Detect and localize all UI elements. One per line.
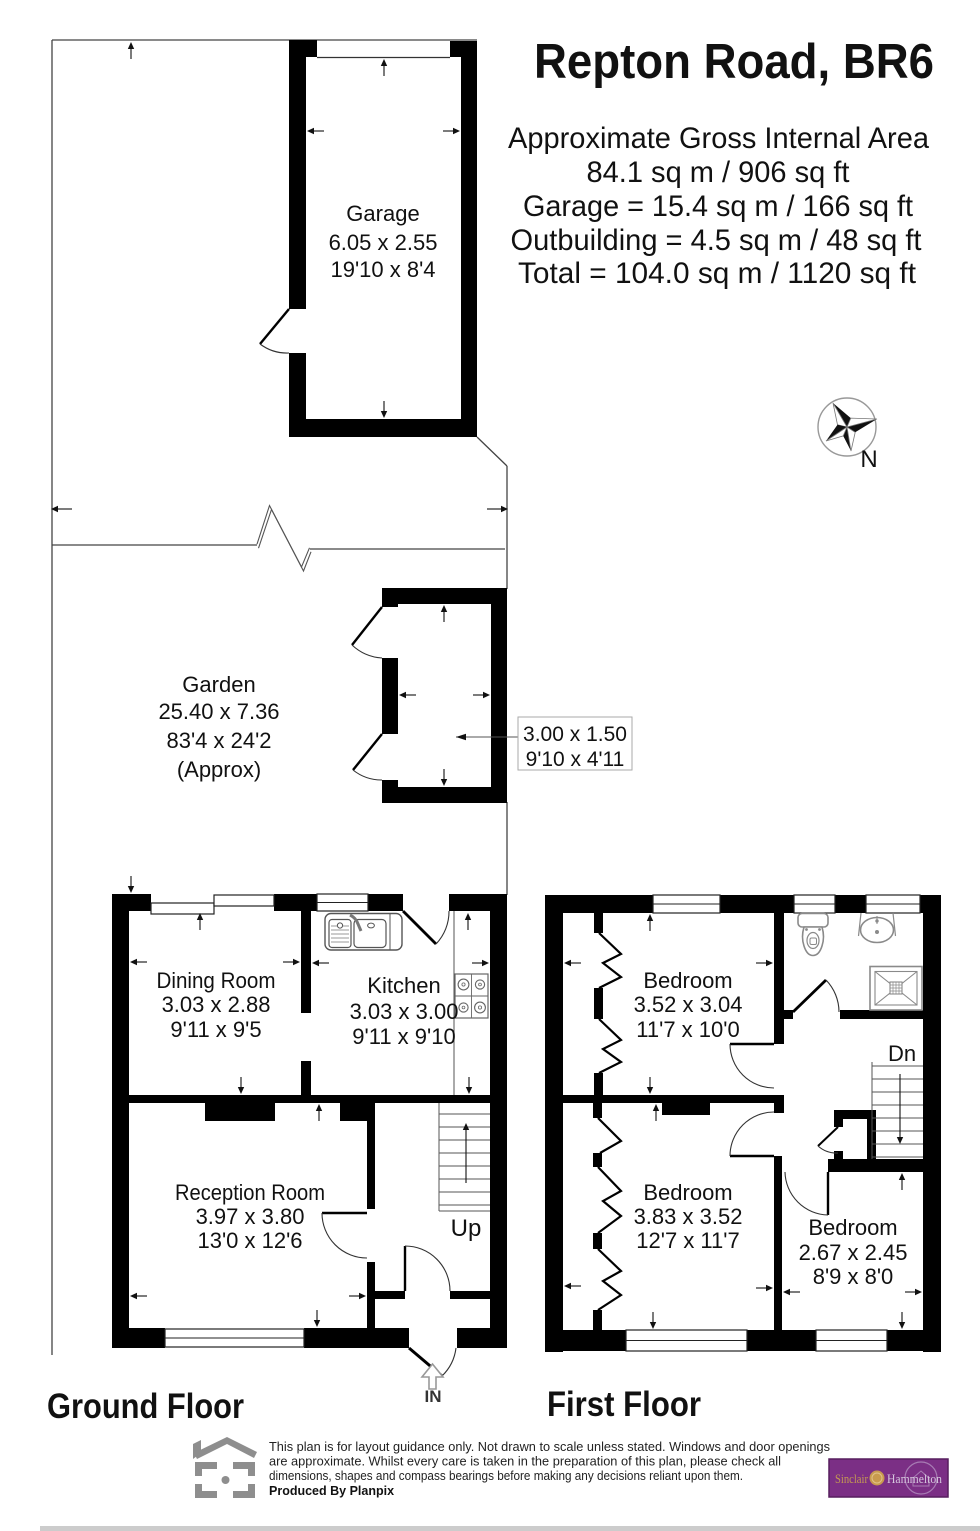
svg-text:84.1 sq m / 906 sq ft: 84.1 sq m / 906 sq ft — [587, 156, 851, 189]
svg-text:9'10 x 4'11: 9'10 x 4'11 — [526, 748, 625, 771]
svg-text:N: N — [860, 446, 877, 473]
svg-text:25.40 x 7.36: 25.40 x 7.36 — [158, 699, 279, 724]
svg-text:Bedroom: Bedroom — [643, 1180, 732, 1205]
svg-text:Reception Room: Reception Room — [175, 1180, 325, 1205]
svg-text:Garage = 15.4 sq m / 166 sq ft: Garage = 15.4 sq m / 166 sq ft — [523, 190, 914, 223]
svg-text:dimensions, shapes and compass: dimensions, shapes and compass bearings … — [269, 1469, 743, 1483]
svg-text:3.52 x 3.04: 3.52 x 3.04 — [634, 992, 743, 1017]
svg-text:9'11 x 9'10: 9'11 x 9'10 — [352, 1024, 455, 1049]
svg-text:Repton Road, BR6: Repton Road, BR6 — [534, 35, 934, 89]
svg-text:Ground Floor: Ground Floor — [47, 1387, 244, 1426]
svg-text:83'4 x 24'2: 83'4 x 24'2 — [166, 728, 271, 753]
svg-text:11'7 x 10'0: 11'7 x 10'0 — [636, 1017, 739, 1042]
svg-text:Dining Room: Dining Room — [157, 968, 276, 993]
svg-text:Produced By Planpix: Produced By Planpix — [269, 1484, 394, 1498]
svg-text:Outbuilding = 4.5 sq m / 48 sq: Outbuilding = 4.5 sq m / 48 sq ft — [511, 224, 923, 257]
svg-text:Garage: Garage — [346, 201, 419, 226]
svg-text:2.67 x 2.45: 2.67 x 2.45 — [799, 1240, 908, 1265]
svg-text:3.00 x 1.50: 3.00 x 1.50 — [523, 723, 627, 746]
svg-text:13'0 x 12'6: 13'0 x 12'6 — [197, 1228, 302, 1253]
svg-text:6.05 x 2.55: 6.05 x 2.55 — [329, 230, 438, 255]
svg-text:19'10 x 8'4: 19'10 x 8'4 — [330, 257, 435, 282]
svg-text:3.97 x 3.80: 3.97 x 3.80 — [196, 1204, 305, 1229]
svg-text:Hammelton: Hammelton — [887, 1471, 942, 1486]
svg-text:Bedroom: Bedroom — [808, 1215, 897, 1240]
svg-text:12'7 x 11'7: 12'7 x 11'7 — [636, 1228, 739, 1253]
svg-text:This plan is for layout guidan: This plan is for layout guidance only. N… — [269, 1440, 830, 1454]
svg-text:9'11 x 9'5: 9'11 x 9'5 — [170, 1017, 261, 1042]
svg-text:are approximate. Whilst every: are approximate. Whilst every care is ta… — [269, 1455, 781, 1469]
svg-text:Total = 104.0 sq m / 1120 sq: Total = 104.0 sq m / 1120 sq ft — [518, 257, 917, 290]
svg-text:3.83 x 3.52: 3.83 x 3.52 — [634, 1204, 743, 1229]
svg-text:Sinclair: Sinclair — [835, 1471, 869, 1486]
svg-text:3.03 x 3.00: 3.03 x 3.00 — [350, 999, 459, 1024]
svg-text:Dn: Dn — [888, 1041, 916, 1066]
svg-text:Up: Up — [451, 1215, 482, 1242]
svg-text:3.03 x 2.88: 3.03 x 2.88 — [162, 992, 271, 1017]
svg-text:Approximate Gross Internal Are: Approximate Gross Internal Area — [508, 122, 929, 155]
svg-text:Garden: Garden — [182, 672, 255, 697]
svg-text:Bedroom: Bedroom — [643, 968, 732, 993]
svg-text:IN: IN — [425, 1387, 442, 1406]
svg-text:8'9 x 8'0: 8'9 x 8'0 — [813, 1264, 894, 1289]
svg-text:Kitchen: Kitchen — [367, 973, 440, 998]
svg-text:First Floor: First Floor — [547, 1385, 701, 1424]
svg-text:(Approx): (Approx) — [177, 757, 261, 782]
